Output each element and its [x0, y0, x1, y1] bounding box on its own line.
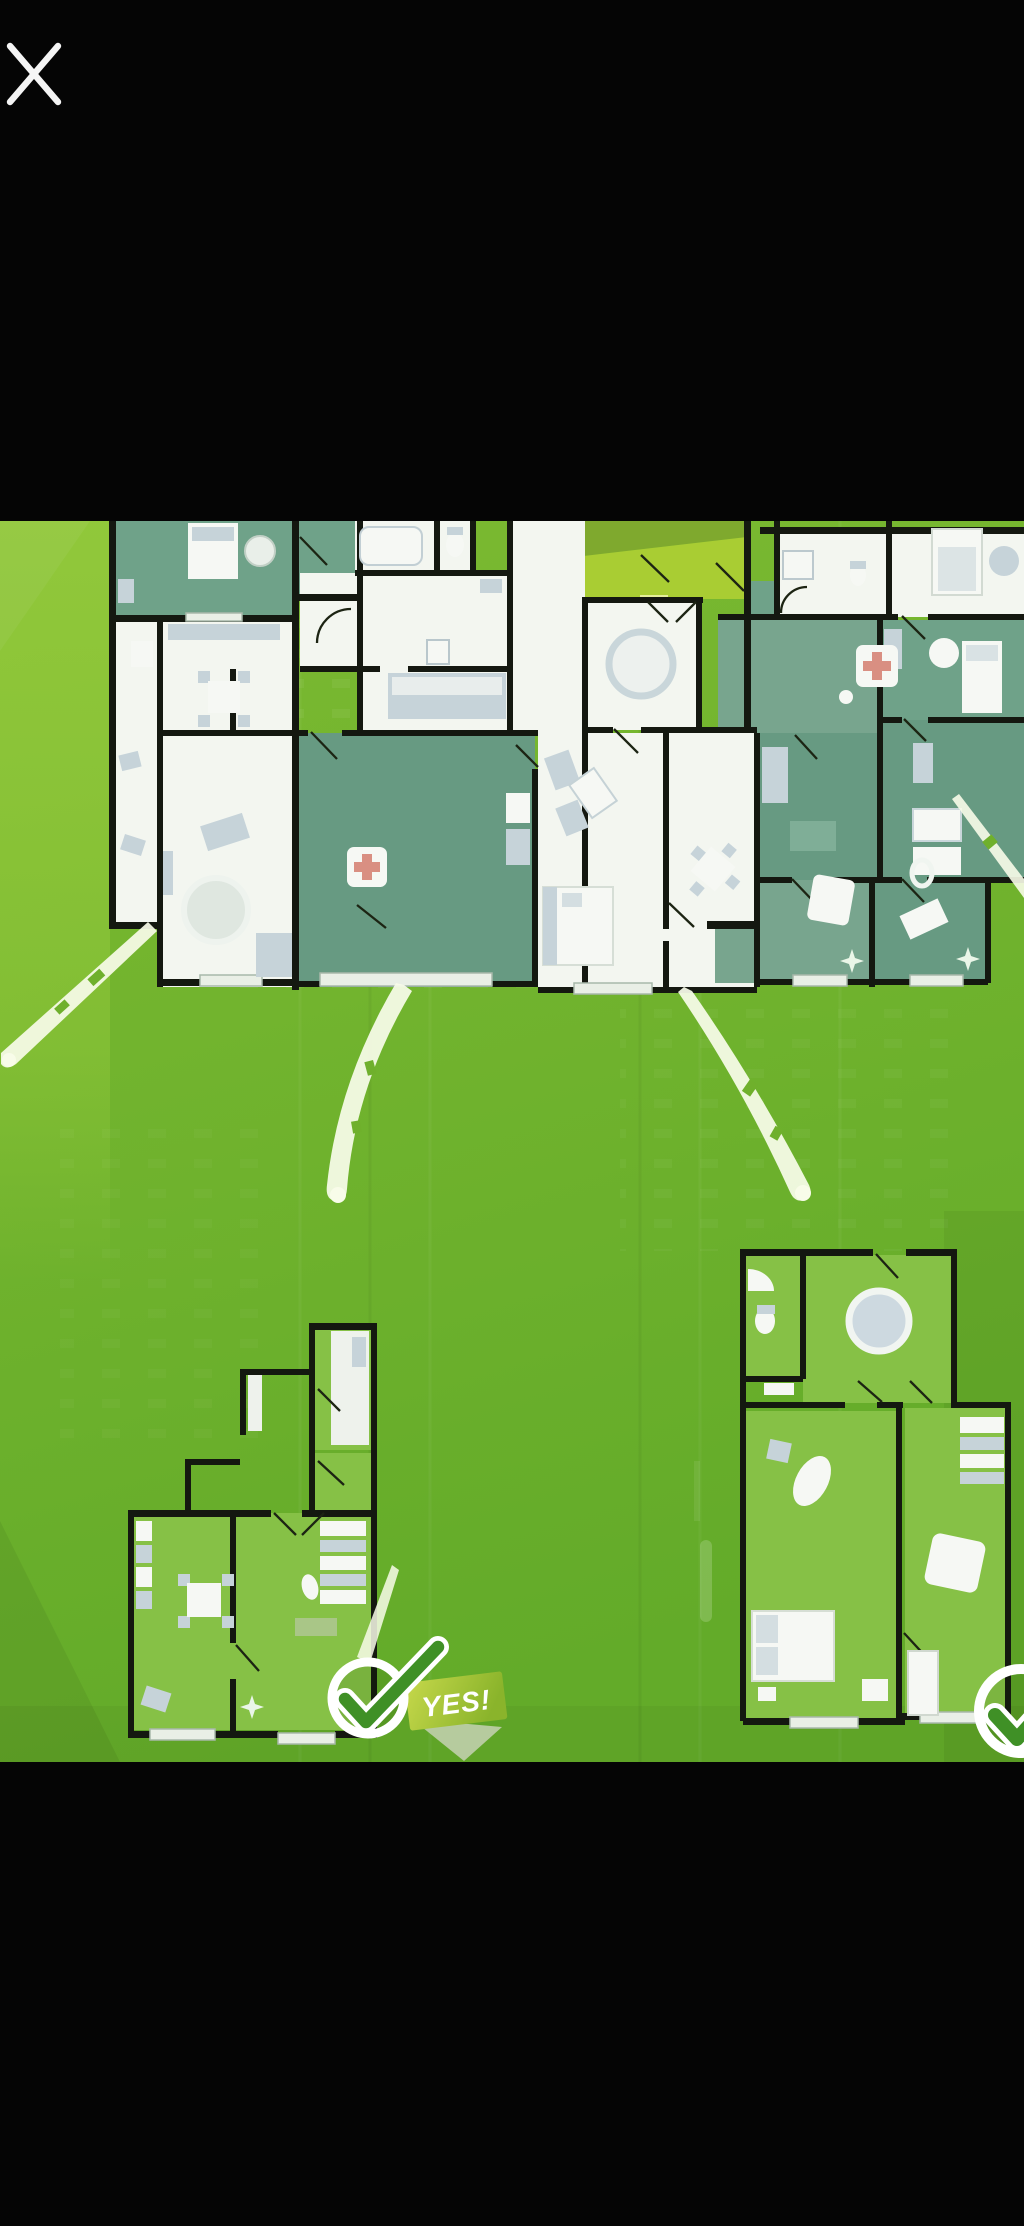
close-button[interactable] — [0, 36, 72, 112]
viewer-image[interactable]: YES! — [0, 521, 1024, 1762]
letterbox-bottom — [0, 1762, 1024, 2226]
letterbox-top — [0, 0, 1024, 521]
floor-plan-band — [109, 521, 1024, 994]
yes-badge-right-partial — [979, 1669, 1024, 1753]
poster-illustration: YES! — [0, 521, 1024, 1762]
close-icon — [0, 36, 72, 112]
image-preview-screen: YES! — [0, 0, 1024, 2226]
